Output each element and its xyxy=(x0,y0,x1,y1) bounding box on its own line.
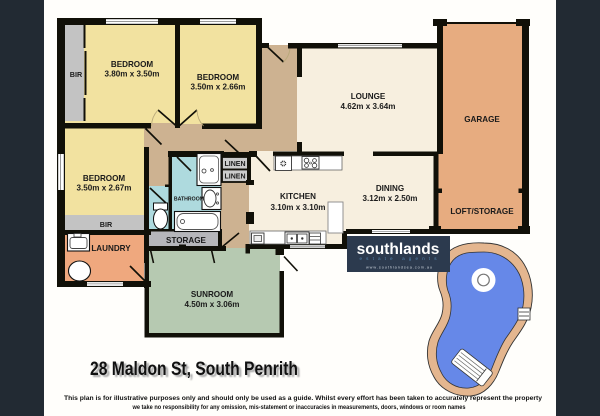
svg-text:3.12m x 2.50m: 3.12m x 2.50m xyxy=(363,194,418,203)
svg-text:3.80m x 3.50m: 3.80m x 3.50m xyxy=(105,70,160,79)
svg-text:LINEN: LINEN xyxy=(225,161,246,168)
svg-text:LOUNGE: LOUNGE xyxy=(351,92,386,101)
svg-text:southlands: southlands xyxy=(357,241,440,258)
svg-text:www.southlandsea.com.au: www.southlandsea.com.au xyxy=(366,266,432,270)
svg-text:LAUNDRY: LAUNDRY xyxy=(91,244,131,253)
svg-text:BATHROOM: BATHROOM xyxy=(174,197,204,203)
svg-text:BIR: BIR xyxy=(70,70,83,79)
svg-text:we take no responsibility for: we take no responsibility for any omissi… xyxy=(132,404,466,411)
svg-text:KITCHEN: KITCHEN xyxy=(280,192,316,201)
svg-text:BEDROOM: BEDROOM xyxy=(83,174,126,183)
svg-text:DINING: DINING xyxy=(376,184,404,193)
svg-text:3.10m x 3.10m: 3.10m x 3.10m xyxy=(271,203,326,212)
svg-text:BEDROOM: BEDROOM xyxy=(197,73,240,82)
svg-text:LINEN: LINEN xyxy=(225,174,246,181)
svg-text:SUNROOM: SUNROOM xyxy=(191,290,234,299)
svg-text:GARAGE: GARAGE xyxy=(464,115,500,124)
svg-text:BIR: BIR xyxy=(100,220,113,229)
svg-text:3.50m x 2.67m: 3.50m x 2.67m xyxy=(77,184,132,193)
svg-text:3.50m x 2.66m: 3.50m x 2.66m xyxy=(191,83,246,92)
svg-text:4.50m x 3.06m: 4.50m x 3.06m xyxy=(185,300,240,309)
svg-text:28 Maldon St, South Penrith: 28 Maldon St, South Penrith xyxy=(90,358,298,380)
svg-text:BEDROOM: BEDROOM xyxy=(111,60,154,69)
svg-text:STORAGE: STORAGE xyxy=(166,236,206,245)
svg-text:This plan is for illustrative: This plan is for illustrative purposes o… xyxy=(64,395,542,402)
svg-text:4.62m x 3.64m: 4.62m x 3.64m xyxy=(341,102,396,111)
svg-text:LOFT/STORAGE: LOFT/STORAGE xyxy=(450,207,514,216)
